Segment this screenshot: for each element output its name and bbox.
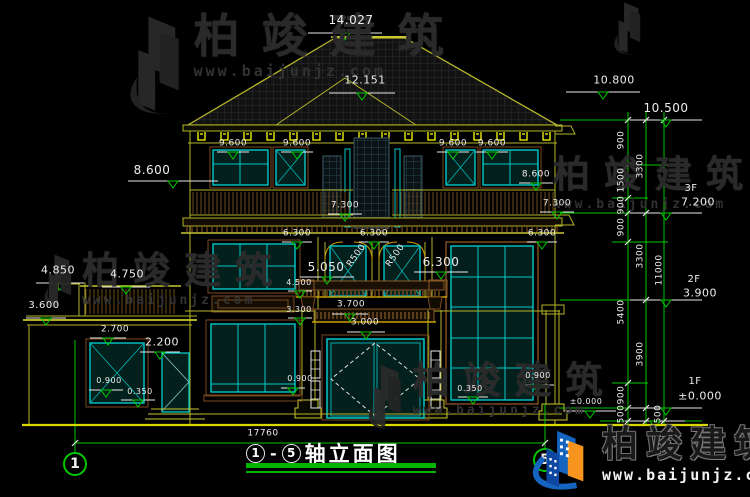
title-axis-start-circle: 1 (246, 444, 265, 463)
watermark-brand-text: 柏竣建筑 (82, 252, 286, 291)
watermark-logo-icon (612, 0, 645, 60)
axis-bubble-1: 1 (63, 452, 87, 476)
watermark: 柏竣建筑www.baijunjz.com (126, 12, 466, 124)
title-underline-thick (246, 463, 436, 468)
watermark: 柏竣建筑www.baijunjz.com (553, 156, 750, 212)
watermark-brand-text: 柏竣建筑 (553, 156, 750, 195)
watermark: 柏竣建筑www.baijunjz.com (42, 252, 286, 314)
brand-logo: 柏竣建筑 www.baijunjz.com (524, 427, 750, 495)
drawing-title: 1 - 5 轴立面图 (246, 438, 401, 468)
watermark-url-text: www.baijunjz.com (553, 197, 750, 212)
title-dash: - (270, 444, 277, 463)
watermark-brand-text: 柏竣建筑 (413, 362, 617, 401)
watermark-url-text: www.baijunjz.com (194, 62, 466, 80)
watermark-logo-icon (126, 12, 188, 124)
watermark: 柏竣建筑www.baijunjz.com (366, 362, 617, 436)
watermark-url-text: www.baijunjz.com (82, 293, 286, 308)
brand-name: 柏竣建筑 (602, 427, 750, 463)
title-underline-thin (246, 471, 436, 473)
watermark-brand-text: 柏竣建筑 (194, 12, 466, 60)
watermark-logo-icon (366, 362, 407, 436)
watermark (612, 0, 645, 60)
watermark-url-text: www.baijunjz.com (413, 403, 617, 418)
title-axis-end-circle: 5 (282, 444, 301, 463)
brand-logo-icon (524, 427, 598, 495)
watermark-logo-icon (42, 252, 76, 314)
watermark-layer: 柏竣建筑www.baijunjz.com柏竣建筑www.baijunjz.com… (0, 0, 750, 497)
cad-elevation-viewport: 柏竣建筑www.baijunjz.com柏竣建筑www.baijunjz.com… (0, 0, 750, 497)
brand-url: www.baijunjz.com (602, 466, 750, 484)
